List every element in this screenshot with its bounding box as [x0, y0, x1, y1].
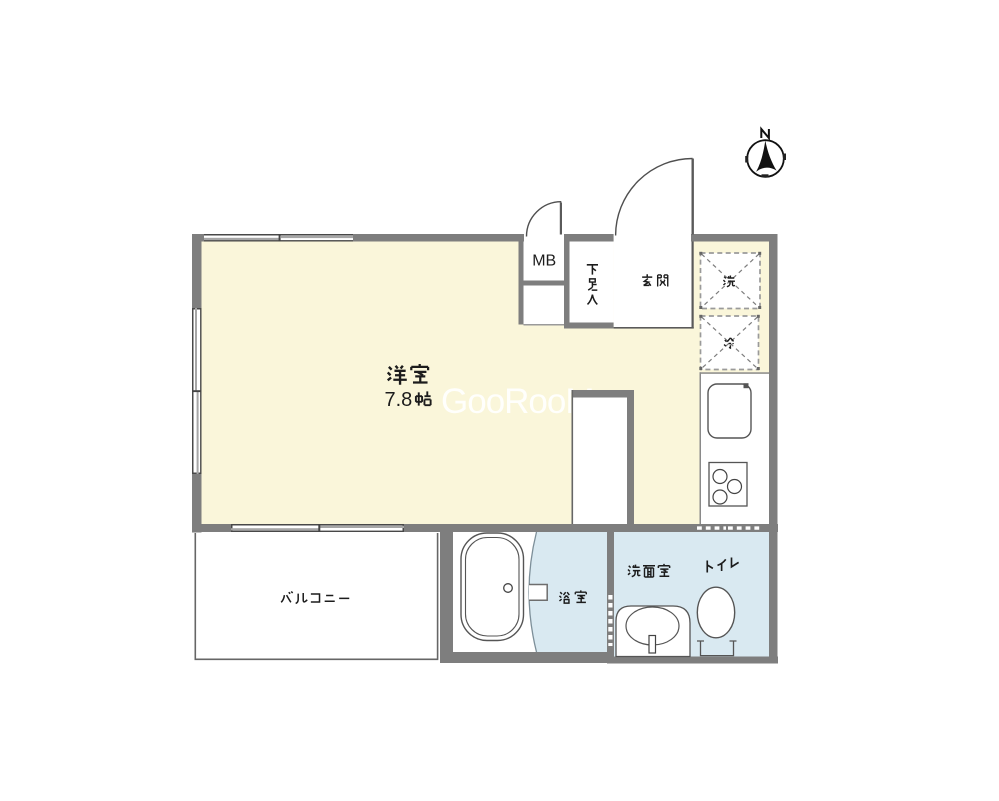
svg-text:GooRooM: GooRooM	[441, 382, 594, 421]
svg-text:MB: MB	[532, 252, 556, 269]
svg-text:7.8: 7.8	[385, 389, 413, 411]
